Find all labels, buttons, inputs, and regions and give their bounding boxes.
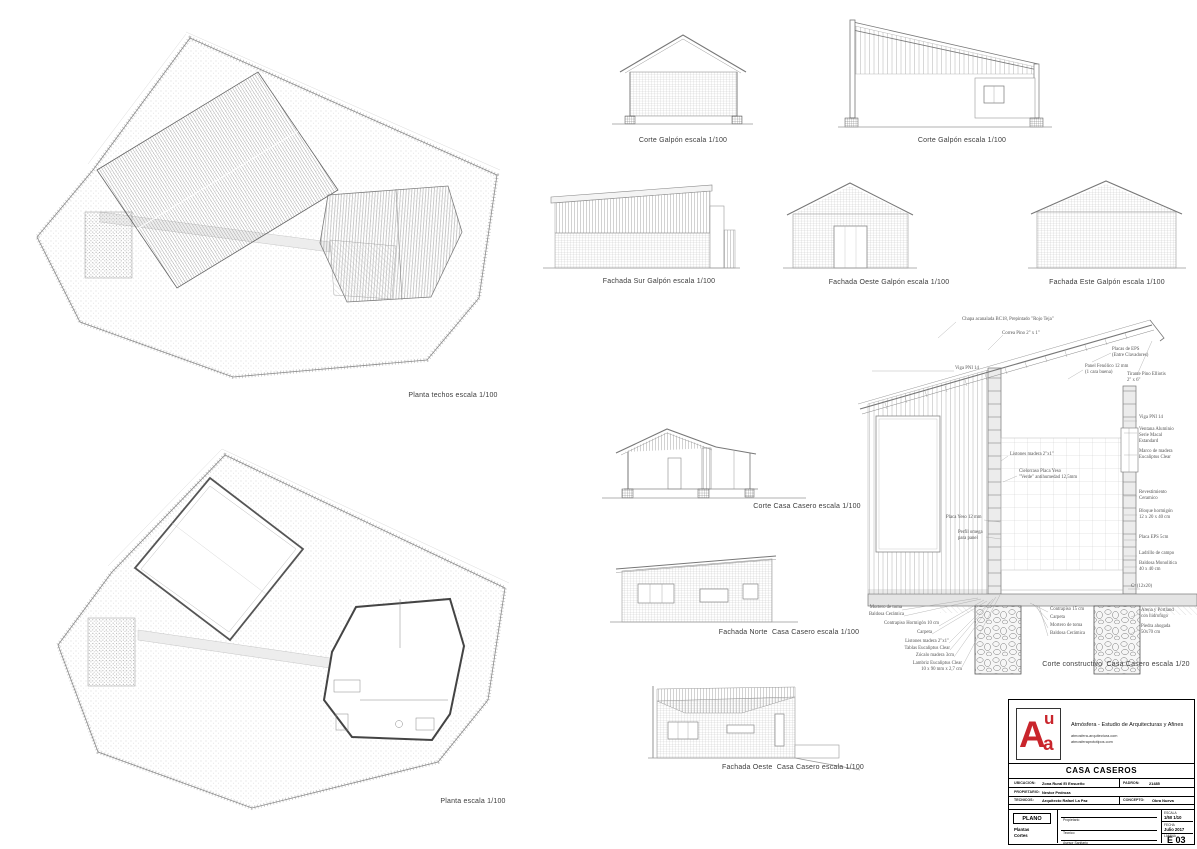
firm-website-2: atmosferaprototipos.com — [1071, 740, 1113, 744]
floor-plan-drawing — [58, 449, 509, 808]
drawing-caption-planta-techos: Planta techos escala 1/100 — [408, 392, 497, 399]
detail-annotation: Revestimiento Ceramico — [1139, 490, 1167, 502]
detail-annotation: Carpeta — [842, 630, 932, 636]
detail-annotation: Perfil omega para panel — [958, 530, 983, 542]
logo-letter-u: u — [1044, 710, 1054, 727]
detail-annotation: Correa Pino 2" x 1" — [1002, 331, 1040, 337]
detail-annotation: Ventana Aluminio Serie Macal Estandard — [1139, 427, 1174, 445]
detail-annotation: Lambriz Eucaliptus Clear 10 x 90 mm x 2,… — [872, 661, 962, 673]
detail-annotation: Piedra ahogada 50x70 cm — [1141, 624, 1170, 636]
signature-asesor-label: Asesor Sanitario — [1063, 841, 1088, 845]
firm-name: Atmósfera - Estudio de Arquitecturas y A… — [1071, 722, 1183, 728]
atmosfera-logo: A u a — [1016, 708, 1061, 760]
fachada-este-galpon-drawing — [1028, 181, 1186, 268]
detail-annotation: Placa EPS 5cm — [1139, 535, 1168, 541]
detail-annotation: Baldosa Cerámica — [814, 612, 904, 618]
divider — [1161, 809, 1162, 843]
drawing-sheet: Planta techos escala 1/100 Planta escala… — [0, 0, 1197, 849]
detail-annotation: Listones madera 2"x1" — [1010, 452, 1054, 458]
ubicacion-label: UBICACION: — [1014, 781, 1036, 785]
padron-label: PADRON: — [1123, 781, 1140, 785]
drawing-caption-corte-galpon-b: Corte Galpón escala 1/100 — [918, 137, 1006, 144]
firm-website-1: atmosfera-arquitectura.com — [1071, 734, 1117, 738]
propietario-label: PROPIETARIO: — [1014, 790, 1040, 794]
divider — [1057, 809, 1058, 843]
detail-annotation: Tirante Pino Elliotis 2" x 6" — [1127, 372, 1166, 384]
escala-value: 1/50 1/10 — [1164, 815, 1181, 820]
drawing-caption-fachada-este-galpon: Fachada Este Galpón escala 1/100 — [1049, 279, 1165, 286]
plano-content: Plantas Cortes — [1014, 827, 1029, 840]
divider — [1009, 796, 1194, 797]
drawing-caption-fachada-oeste-galpon: Fachada Oeste Galpón escala 1/100 — [829, 279, 950, 286]
drawing-caption-corte-galpon-a: Corte Galpón escala 1/100 — [639, 137, 727, 144]
detail-annotation: Chapa acanalada BC18, Prepintado "Rojo T… — [962, 317, 1077, 323]
divider — [1009, 804, 1194, 805]
detail-annotation: Tablas Eucaliptus Clear — [860, 646, 950, 652]
divider — [1009, 778, 1194, 779]
fachada-oeste-casa-drawing — [648, 686, 860, 770]
drawing-caption-fachada-sur-galpon: Fachada Sur Galpón escala 1/100 — [603, 278, 715, 285]
logo-letter-a-small: a — [1043, 735, 1054, 754]
drawing-caption-fachada-norte-casa: Fachada Norte Casa Casero escala 1/100 — [719, 629, 860, 636]
title-block: A u a Atmósfera - Estudio de Arquitectur… — [1008, 699, 1195, 845]
signature-propietario-label: Propietario — [1063, 818, 1079, 822]
corte-casa-drawing — [602, 429, 806, 498]
detail-annotation: Placas de EPS (Entre Clavadores) — [1112, 347, 1148, 359]
escala-label: ESCALA — [1164, 811, 1177, 815]
drawing-caption-corte-casa: Corte Casa Casero escala 1/100 — [753, 503, 861, 510]
drawing-caption-corte-constructivo: Corte constructivo Casa Casero escala 1/… — [1042, 661, 1190, 668]
concepto-value: Obra Nueva — [1152, 798, 1174, 803]
detail-annotation: Arena y Portland con hidrofugo — [1141, 608, 1174, 620]
project-title: CASA CASEROS — [1009, 766, 1194, 775]
drawing-caption-fachada-oeste-casa: Fachada Oeste Casa Casero escala 1/100 — [722, 764, 864, 771]
lamina-value: E 03 — [1167, 835, 1186, 845]
drawing-caption-planta: Planta escala 1/100 — [440, 798, 505, 805]
corte-galpon-a-drawing — [612, 35, 753, 124]
ubicacion-value: Zona Rural El Ensueño — [1042, 781, 1085, 786]
fecha-label: FECHA — [1164, 823, 1175, 827]
detail-annotation: Mortero de toma — [812, 605, 902, 611]
detail-annotation: Ladrillo de campo — [1139, 551, 1174, 557]
padron-value: 21485 — [1149, 781, 1160, 786]
tecnicos-value: Arquitecto Rafael La Paz — [1042, 798, 1088, 803]
detail-annotation: Placa Yeso 12 mm — [946, 515, 981, 521]
detail-annotation: Mortero de toma — [1050, 623, 1082, 629]
detail-annotation: Listones madera 2"x1" — [859, 639, 949, 645]
signature-line — [1061, 830, 1157, 831]
signature-tecnico-label: Tecnico — [1063, 831, 1075, 835]
detail-annotation: Viga PNI 14 — [1139, 415, 1163, 421]
detail-annotation: Contrapiso Hormigón 10 cm — [849, 621, 939, 627]
detail-annotation: Marco de madera Eucaliptus Clear — [1139, 449, 1173, 461]
propietario-value: Nestor Pedroza — [1042, 790, 1071, 795]
detail-annotation: Viga PNI 14 — [955, 366, 979, 372]
concepto-label: CONCEPTO: — [1123, 798, 1145, 802]
detail-annotation: Cº (12x20) — [1131, 584, 1152, 590]
detail-annotation: Contrapiso 15 cm — [1050, 607, 1084, 613]
detail-annotation: Baldosa Monolitica 40 x 40 cm — [1139, 561, 1177, 573]
fecha-value: Julio 2017 — [1164, 827, 1184, 832]
divider — [1119, 796, 1120, 805]
roof-plan-drawing — [37, 32, 500, 377]
divider — [1119, 778, 1120, 787]
detail-annotation: Bloque hormigón 12 x 20 x 40 cm — [1139, 509, 1173, 521]
corte-galpon-b-drawing — [838, 20, 1052, 127]
detail-annotation: Cielorraso Placa Yeso "Verde" antihumeda… — [1019, 469, 1077, 481]
fachada-norte-casa-drawing — [610, 556, 798, 622]
fachada-sur-galpon-drawing — [543, 185, 740, 268]
detail-annotation: Panel Fenólico 12 mm (1 cara buena) — [1085, 364, 1128, 376]
tecnicos-label: TECNICOS: — [1014, 798, 1034, 802]
divider — [1009, 787, 1194, 788]
detail-annotation: Carpeta — [1050, 615, 1065, 621]
fachada-oeste-galpon-drawing — [783, 183, 917, 268]
detail-annotation: Zócalo madera 3cm — [864, 653, 954, 659]
detail-annotation: Baldosa Cerámica — [1050, 631, 1085, 637]
divider — [1009, 763, 1194, 764]
logo-letter-a-big: A — [1019, 716, 1046, 753]
plano-label: PLANO — [1013, 813, 1051, 824]
